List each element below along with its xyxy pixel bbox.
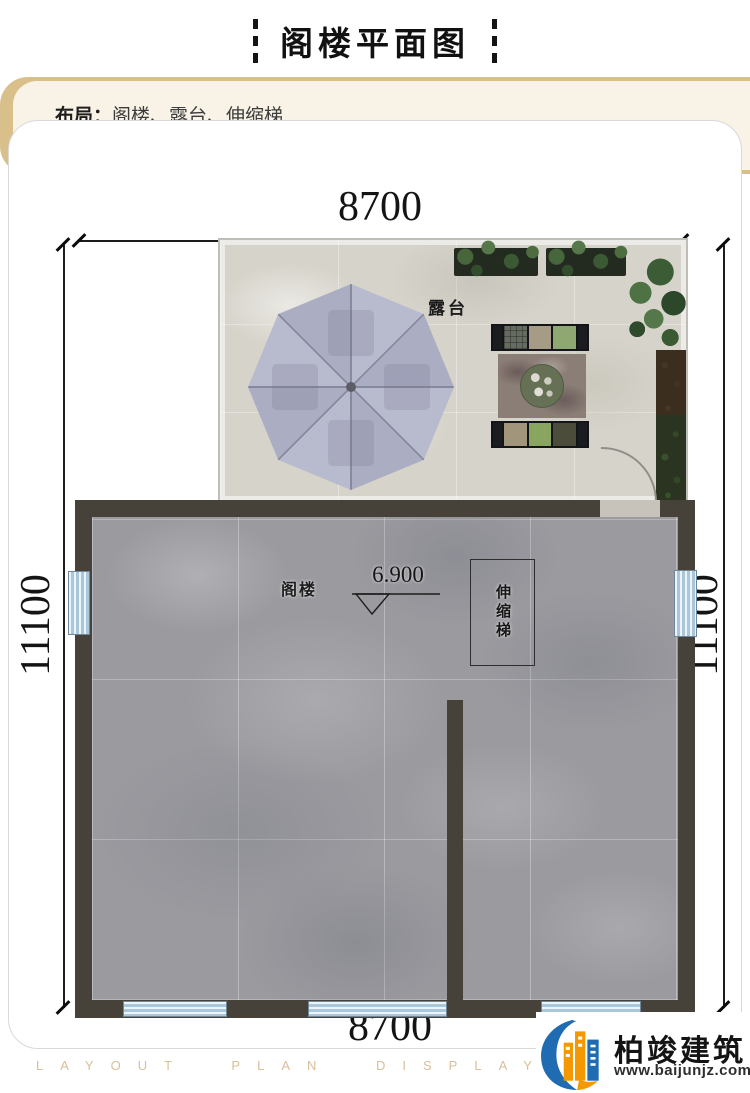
bench-armrest [578, 326, 587, 349]
door-opening [600, 500, 660, 517]
window-bottom-2 [308, 1001, 447, 1017]
bench-cushion [529, 326, 552, 349]
brand-url: www.baijunjz.com [614, 1062, 750, 1079]
window-right [674, 570, 697, 637]
telescopic-ladder-box: 伸缩梯 [470, 559, 535, 666]
bench-cushion [553, 326, 576, 349]
plants [448, 238, 544, 282]
bench-armrest [493, 326, 502, 349]
level-value: 6.900 [352, 562, 444, 588]
attic-label: 阁楼 [281, 576, 317, 600]
bench-bottom [491, 421, 589, 448]
fire-pit-circle [520, 364, 564, 408]
patio-umbrella [248, 284, 454, 490]
dimension-left-line [63, 245, 65, 1008]
bench-cushion [504, 326, 527, 349]
bench-armrest [578, 423, 587, 446]
terrace-label: 露台 [428, 294, 468, 319]
hedge-strip [656, 350, 686, 503]
dimension-top-value: 8700 [280, 186, 480, 228]
bench-cushion [504, 423, 527, 446]
brand-block: 柏竣建筑 www.baijunjz.com [536, 1012, 750, 1093]
page-title: 阁楼平面图 [280, 17, 470, 65]
fire-pit-table [498, 354, 586, 418]
brand-logo-icon [538, 1018, 610, 1092]
plants [540, 238, 632, 282]
tree [624, 246, 688, 350]
level-marker-icon [348, 588, 444, 618]
chair-silhouette [384, 364, 430, 410]
dashed-bar-left-icon [253, 19, 258, 63]
dimension-left-value: 11100 [15, 545, 57, 705]
dashed-bar-right-icon [492, 19, 497, 63]
umbrella-center-icon [346, 382, 356, 392]
interior-wall [447, 700, 463, 1005]
bench-cushion [529, 423, 552, 446]
window-left [68, 571, 90, 635]
planter-box [454, 248, 538, 276]
chair-silhouette [328, 310, 374, 356]
bench-cushion [553, 423, 576, 446]
page: 阁楼平面图 布局：阁楼、露台、伸缩梯 ◆ 本层建筑面积:67.4m² LAYOU… [0, 0, 750, 1093]
header: 阁楼平面图 [0, 16, 750, 66]
door-swing-arc [547, 447, 657, 503]
window-bottom-1 [123, 1001, 227, 1017]
chair-silhouette [272, 364, 318, 410]
terrace-area: 露台 [218, 238, 688, 503]
planter-box [546, 248, 626, 276]
chair-silhouette [328, 420, 374, 466]
ladder-label: 伸缩梯 [492, 584, 513, 641]
bench-armrest [493, 423, 502, 446]
bench-top [491, 324, 589, 351]
